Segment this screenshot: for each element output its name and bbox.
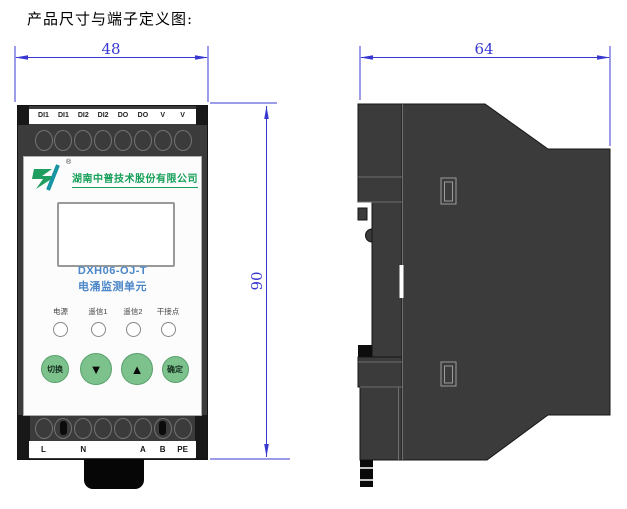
terminal-hole — [94, 418, 112, 439]
led-dry-contact — [161, 322, 176, 337]
terminal-hole — [174, 130, 192, 151]
terminal-screw-slot — [60, 421, 67, 435]
product-name: 电涌监测单元 — [24, 278, 201, 294]
terminal-hole — [134, 418, 152, 439]
switch-button[interactable]: 切换 — [41, 355, 69, 383]
terminal-label-PE: PE — [177, 445, 188, 454]
side-view-drawing — [358, 104, 610, 487]
dimension-label-height: 90 — [248, 271, 266, 290]
terminal-label: DI1 — [58, 112, 69, 119]
terminal-hole — [174, 418, 192, 439]
terminal-label: V — [180, 112, 185, 119]
terminal-label-N: N — [80, 445, 86, 454]
led-label-dry-contact: 干接点 — [157, 306, 180, 317]
housing-frame-bottom-right — [195, 415, 207, 459]
terminal-label: DI2 — [98, 112, 109, 119]
registered-trademark-icon: ® — [66, 159, 71, 166]
terminal-label-B: B — [160, 445, 166, 454]
front-panel: ® 湖南中普技术股份有限公司 DXH06-OJ-T 电涌监测单元 电源 遥信1 … — [23, 156, 202, 416]
terminal-hole — [54, 418, 72, 439]
terminal-label: V — [160, 112, 165, 119]
terminal-hole — [114, 130, 132, 151]
terminal-label: DI1 — [38, 112, 49, 119]
led-label-remote1: 遥信1 — [88, 306, 107, 317]
terminal-label-L: L — [41, 445, 46, 454]
din-rail-clip-side — [360, 460, 373, 487]
model-number: DXH06-OJ-T — [24, 265, 201, 277]
product-dimension-diagram-page: 产品尺寸与端子定义图: — [0, 0, 627, 509]
led-label-remote2: 遥信2 — [123, 306, 142, 317]
terminal-label: DO — [118, 112, 129, 119]
lcd-display — [57, 202, 175, 267]
led-remote1 — [91, 322, 106, 337]
led-power — [53, 322, 68, 337]
rail-slot-gap — [400, 265, 404, 298]
terminal-hole — [94, 130, 112, 151]
terminal-hole — [54, 130, 72, 151]
terminal-hole — [35, 418, 53, 439]
confirm-button[interactable]: 确定 — [162, 356, 189, 383]
din-rail-clip-front — [84, 459, 144, 489]
down-arrow-button[interactable]: ▼ — [80, 353, 112, 385]
terminal-screw-slot — [159, 421, 166, 435]
up-arrow-button[interactable]: ▲ — [121, 353, 153, 385]
terminal-hole — [74, 130, 92, 151]
terminal-hole — [35, 130, 53, 151]
bottom-terminal-label-strip: L N A B PE — [29, 441, 196, 458]
led-label-power: 电源 — [53, 306, 68, 317]
terminal-label: DI2 — [78, 112, 89, 119]
company-name: 湖南中普技术股份有限公司 — [72, 170, 198, 188]
dimension-label-depth: 64 — [474, 40, 493, 58]
terminal-label: DO — [138, 112, 149, 119]
zp-logo-icon — [31, 163, 69, 191]
terminal-hole — [114, 418, 132, 439]
terminal-hole — [74, 418, 92, 439]
terminal-hole — [154, 130, 172, 151]
front-view-device: DI1 DI1 DI2 DI2 DO DO V V ® 湖南中普技术股份有限公司 — [17, 105, 208, 460]
terminal-label-A: A — [140, 445, 146, 454]
dimension-label-width: 48 — [101, 40, 120, 58]
terminal-hole — [134, 130, 152, 151]
terminal-hole — [154, 418, 172, 439]
led-remote2 — [126, 322, 141, 337]
housing-corner-top-left — [18, 106, 29, 125]
top-terminal-label-strip: DI1 DI1 DI2 DI2 DO DO V V — [29, 109, 196, 124]
housing-corner-top-right — [196, 106, 207, 125]
